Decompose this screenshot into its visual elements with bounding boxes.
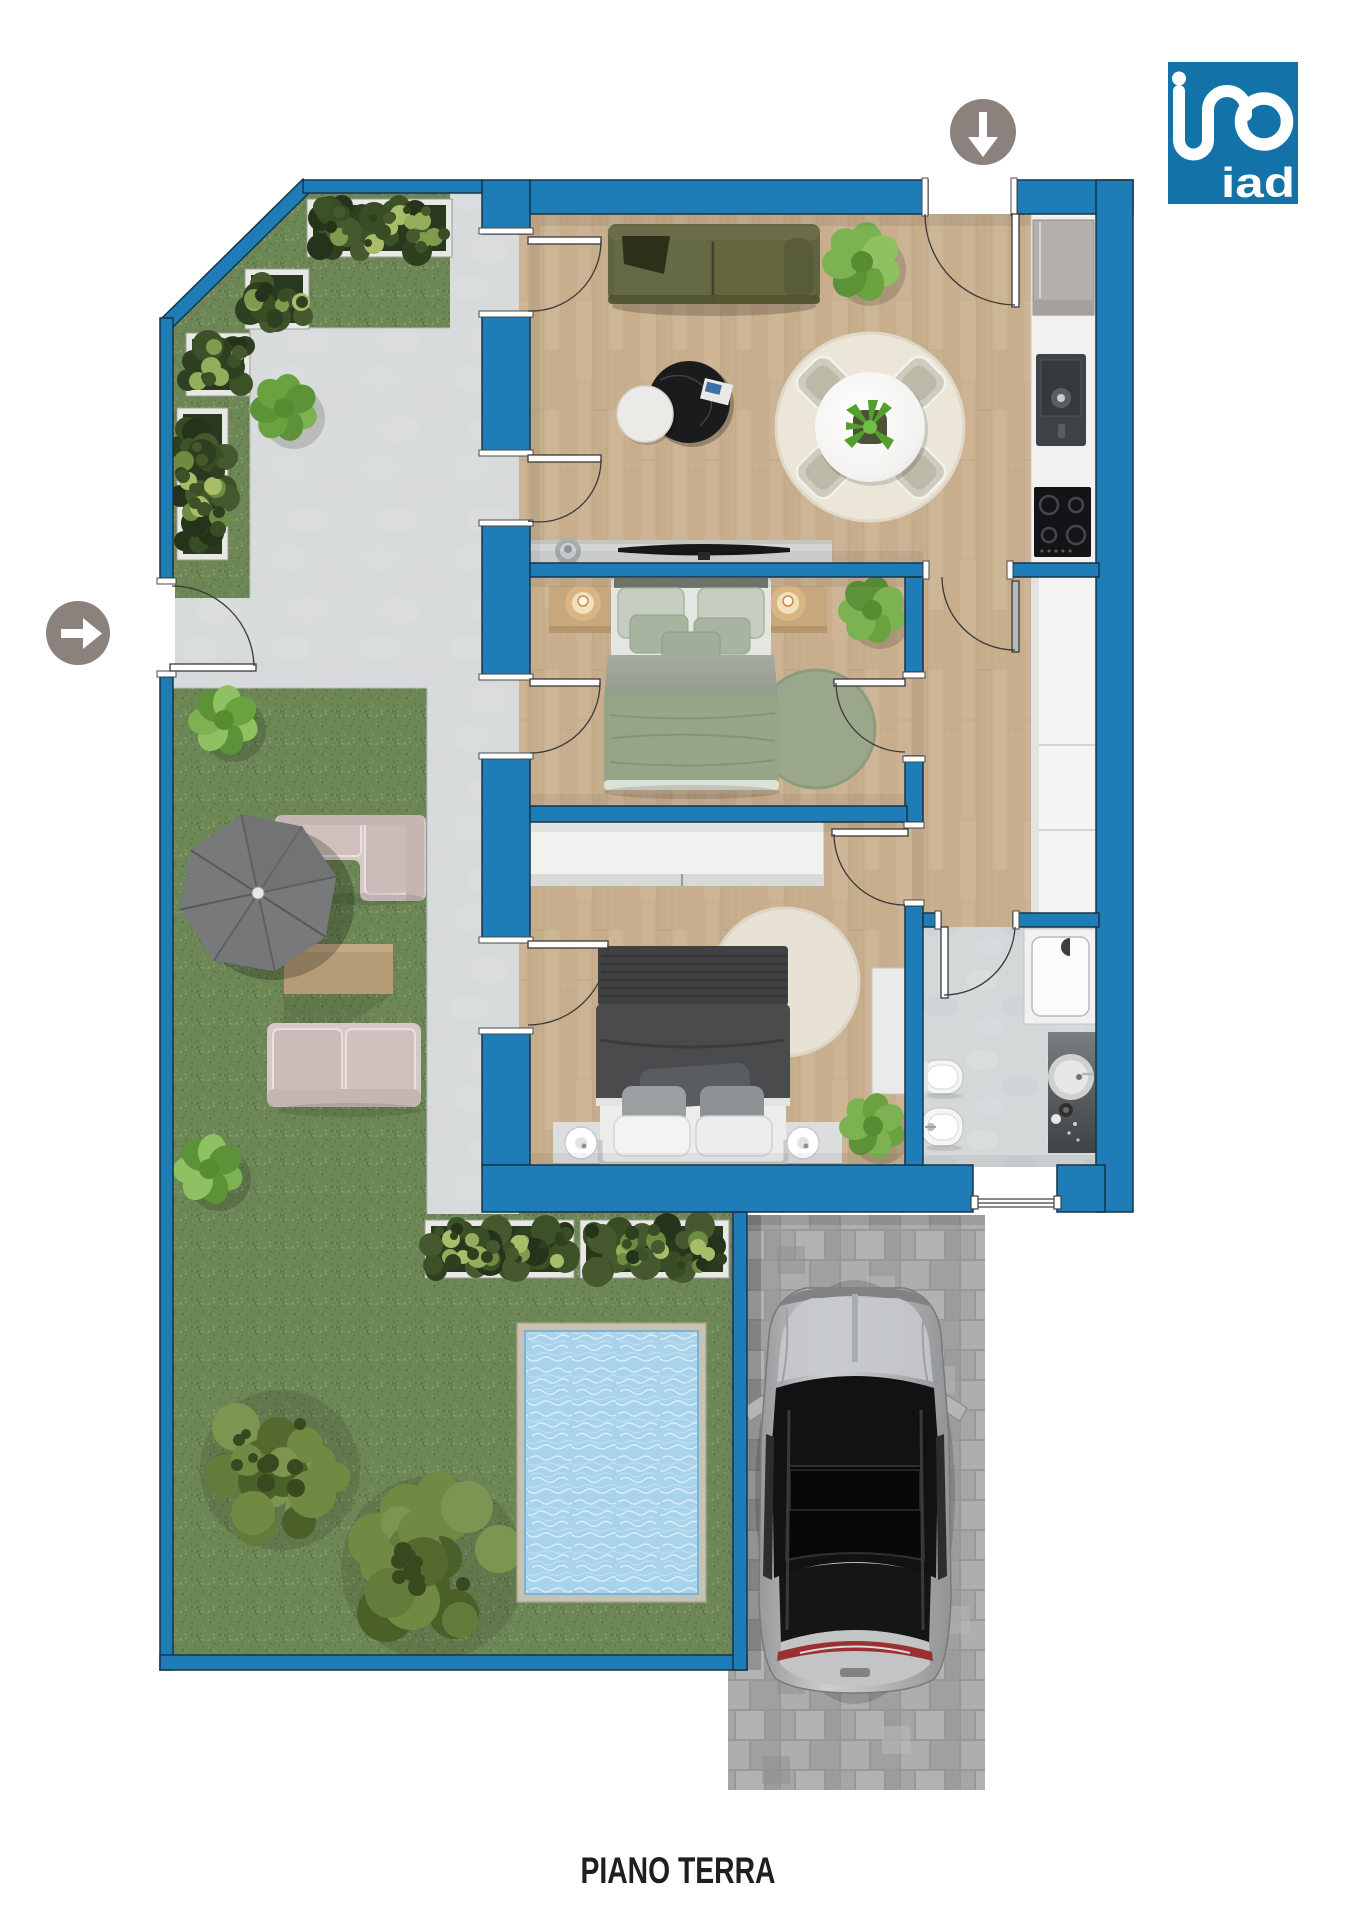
svg-text:iad: iad [1221,159,1295,206]
svg-text:PIANO TERRA: PIANO TERRA [581,1850,776,1891]
